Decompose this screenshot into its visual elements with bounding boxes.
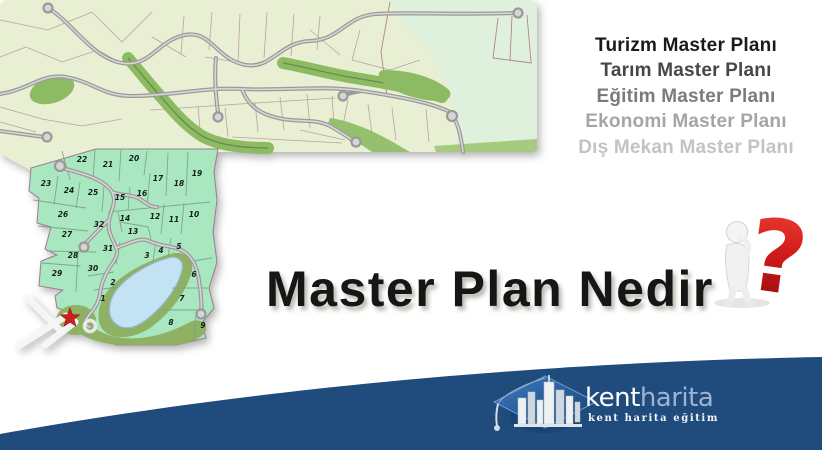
- lot-number-30: 30: [88, 264, 98, 273]
- city-skyline-icon: [514, 375, 582, 427]
- brand-harita: harita: [640, 383, 713, 413]
- logo-tagline: kent harita eğitim: [588, 413, 719, 424]
- figure-foot: [723, 301, 733, 307]
- plan-list-item: Dış Mekan Master Planı: [552, 135, 820, 160]
- lot-number-16: 16: [137, 189, 147, 198]
- thinking-person-icon: ?: [700, 198, 820, 316]
- lot-number-21: 21: [103, 160, 113, 169]
- lot-number-8: 8: [168, 318, 173, 327]
- plan-list-item: Eğitim Master Planı: [552, 84, 820, 109]
- lot-number-29: 29: [52, 269, 62, 278]
- tassel-bead: [494, 425, 500, 431]
- lot-number-26: 26: [58, 210, 68, 219]
- lot-number-14: 14: [120, 214, 130, 223]
- lot-number-23: 23: [41, 179, 51, 188]
- lot-number-4: 4: [158, 246, 163, 255]
- lot-number-11: 11: [169, 215, 179, 224]
- lot-number-28: 28: [68, 251, 78, 260]
- lot-number-24: 24: [64, 186, 74, 195]
- lot-number-1: 1: [100, 294, 105, 303]
- lot-number-5: 5: [176, 242, 181, 251]
- lot-number-12: 12: [150, 212, 160, 221]
- plan-list-item: Turizm Master Planı: [552, 33, 820, 58]
- question-mark-figure: ?: [700, 198, 820, 316]
- figure-foot: [745, 301, 755, 307]
- presentation-slide: 1234567891011121314151617181920212223242…: [0, 0, 822, 450]
- plan-list-item: Ekonomi Master Planı: [552, 109, 820, 134]
- lot-number-7: 7: [179, 294, 185, 303]
- lot-number-22: 22: [77, 155, 87, 164]
- master-plan-list: Turizm Master Planı Tarım Master Planı E…: [552, 33, 820, 160]
- page-title: Master Plan Nedir: [266, 260, 714, 318]
- lot-number-6: 6: [191, 270, 196, 279]
- lot-number-10: 10: [189, 210, 199, 219]
- brand-text: kentharita: [585, 383, 713, 413]
- lot-number-27: 27: [62, 230, 73, 239]
- figure-shadow: [714, 298, 770, 308]
- lot-number-18: 18: [174, 179, 184, 188]
- plan-list-item: Tarım Master Planı: [552, 58, 820, 83]
- lot-number-3: 3: [144, 251, 149, 260]
- lot-number-25: 25: [88, 188, 98, 197]
- lot-number-17: 17: [153, 174, 164, 183]
- lot-number-15: 15: [115, 193, 125, 202]
- roundabout: [55, 161, 65, 171]
- question-mark: ?: [741, 198, 815, 316]
- brand-kent: kent: [585, 383, 640, 413]
- lot-number-19: 19: [192, 169, 202, 178]
- marina-road: [28, 298, 60, 330]
- lot-number-20: 20: [129, 154, 139, 163]
- lot-number-32: 32: [94, 220, 104, 229]
- lot-number-13: 13: [128, 227, 138, 236]
- tassel: [496, 404, 498, 426]
- lot-number-9: 9: [200, 321, 205, 330]
- lot-number-2: 2: [110, 278, 115, 287]
- lot-number-31: 31: [103, 244, 113, 253]
